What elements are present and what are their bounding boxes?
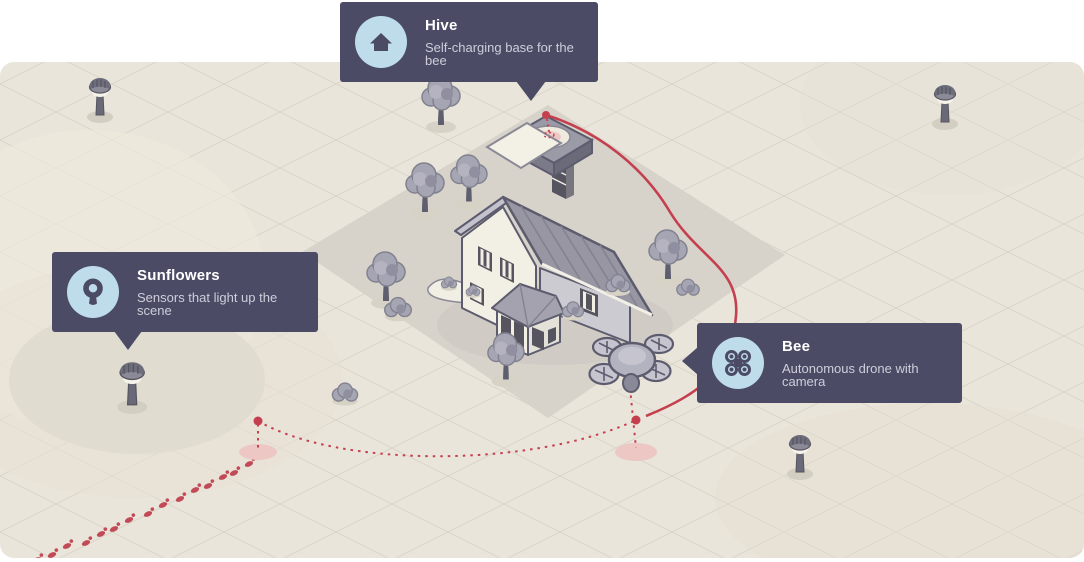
tooltip-bee-description: Autonomous drone with camera bbox=[782, 362, 940, 388]
home-icon bbox=[355, 16, 407, 68]
alert-spot-drone bbox=[615, 443, 657, 461]
tooltip-sunflowers-description: Sensors that light up the scene bbox=[137, 291, 296, 317]
tooltip-bee: Bee Autonomous drone with camera bbox=[697, 323, 962, 403]
hive-waypoint-dot bbox=[542, 111, 550, 119]
tooltip-hive: Hive Self-charging base for the bee bbox=[340, 2, 598, 82]
drone-waypoint-dot bbox=[632, 416, 641, 425]
sensor-waypoint-dot bbox=[254, 417, 263, 426]
scene: Hive Self-charging base for the bee Sunf… bbox=[0, 0, 1084, 562]
tooltip-hive-title: Hive bbox=[425, 18, 576, 33]
tooltip-bee-title: Bee bbox=[782, 339, 940, 354]
tooltip-sunflowers: Sunflowers Sensors that light up the sce… bbox=[52, 252, 318, 332]
sunflower-lamp-icon bbox=[67, 266, 119, 318]
tooltip-hive-description: Self-charging base for the bee bbox=[425, 41, 576, 67]
drone-rotors-icon bbox=[712, 337, 764, 389]
tooltip-sunflowers-title: Sunflowers bbox=[137, 268, 296, 283]
